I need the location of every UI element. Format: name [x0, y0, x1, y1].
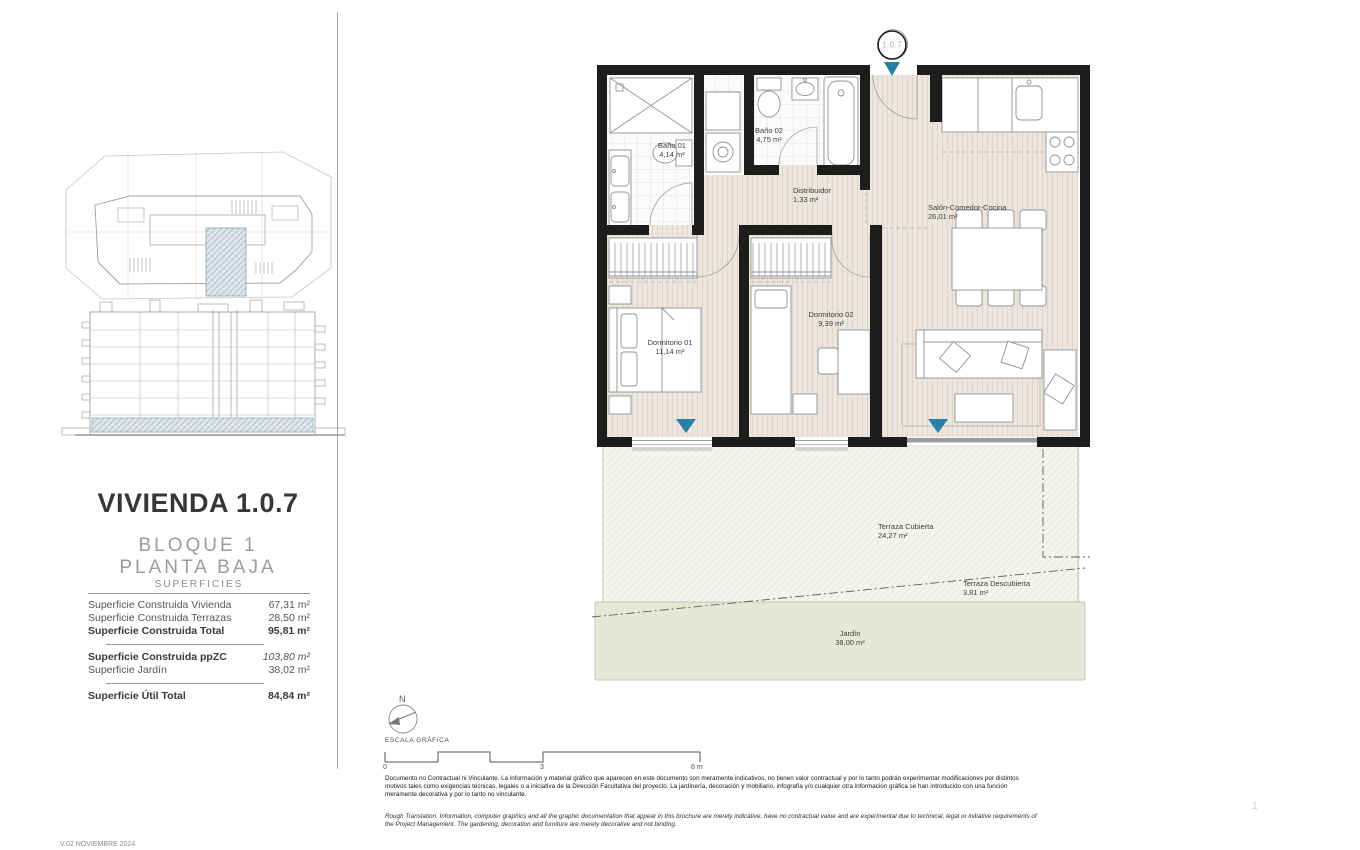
site-key-plan — [66, 152, 331, 299]
scale-tick-3: 3 — [540, 764, 544, 771]
table-row: Superficie Construida Vivienda 67,31 m² — [88, 599, 310, 612]
room-label-terraza-cubierta: Terraza Cubierta 24,27 m² — [878, 522, 933, 540]
scale-label: ESCALA GRÁFICA — [385, 737, 449, 744]
site-plan-unit-highlight — [206, 228, 246, 296]
room-label-distribuidor: Distribuidor 1,33 m² — [793, 186, 831, 204]
page-title: VIVIENDA 1.0.7 — [57, 488, 339, 519]
unit-marker-label: 1.0.7 — [882, 41, 902, 50]
north-arrow — [388, 705, 417, 733]
floor-subtitle: PLANTA BAJA — [57, 557, 339, 579]
room-label-terraza-descubierta: Terraza Descubierta 3,81 m² — [963, 579, 1030, 597]
table-row: Superficie Construida Terrazas 28,50 m² — [88, 612, 310, 625]
section-ground-floor-highlight — [92, 418, 313, 432]
table-rule — [106, 683, 264, 684]
surface-table: SUPERFICIES Superficie Construida Vivien… — [88, 579, 310, 703]
table-row-total: Superficie Construida Total 95,81 m² — [88, 625, 310, 638]
table-row-util-total: Superficie Útil Total 84,84 m² — [88, 690, 310, 703]
room-label-salon-comedor-cocina: Salón-Comedor-Cocina 26,01 m² — [928, 203, 1006, 221]
table-rule — [106, 644, 264, 645]
north-label: N — [399, 694, 406, 704]
graphic-scale-bar — [385, 752, 700, 762]
table-row: Superficie Jardín 38,02 m² — [88, 664, 310, 677]
room-label-jardin: Jardín 38,00 m² — [835, 629, 865, 647]
page-number: 1 — [1252, 801, 1258, 812]
version-stamp: V.02 NOVIEMBRE 2024 — [60, 841, 135, 848]
entrance-marker-triangle — [884, 62, 900, 76]
disclaimer-english: Rough Translation. Information, computer… — [385, 813, 1037, 829]
table-row-ppzc: Superficie Construida ppZC 103,80 m² — [88, 651, 310, 664]
room-label-dormitorio-02: Dormitorio 02 9,39 m² — [808, 310, 853, 328]
room-label-bano-02: Baño 02 4,75 m² — [755, 126, 783, 144]
table-rule — [88, 593, 310, 594]
scale-tick-6: 6 m — [691, 764, 703, 771]
block-subtitle: BLOQUE 1 — [57, 535, 339, 557]
room-label-dormitorio-01: Dormitorio 01 11,14 m² — [647, 338, 692, 356]
room-label-bano-01: Baño 01 4,14 m² — [658, 141, 686, 159]
brochure-page: VIVIENDA 1.0.7 BLOQUE 1 PLANTA BAJA SUPE… — [0, 0, 1360, 850]
building-section — [62, 300, 345, 435]
surface-table-header: SUPERFICIES — [88, 579, 310, 590]
floor-plan-drawing — [0, 0, 1360, 850]
disclaimer-spanish: Documento no Contractual ni Vinculante. … — [385, 775, 1037, 799]
scale-tick-0: 0 — [383, 764, 387, 771]
